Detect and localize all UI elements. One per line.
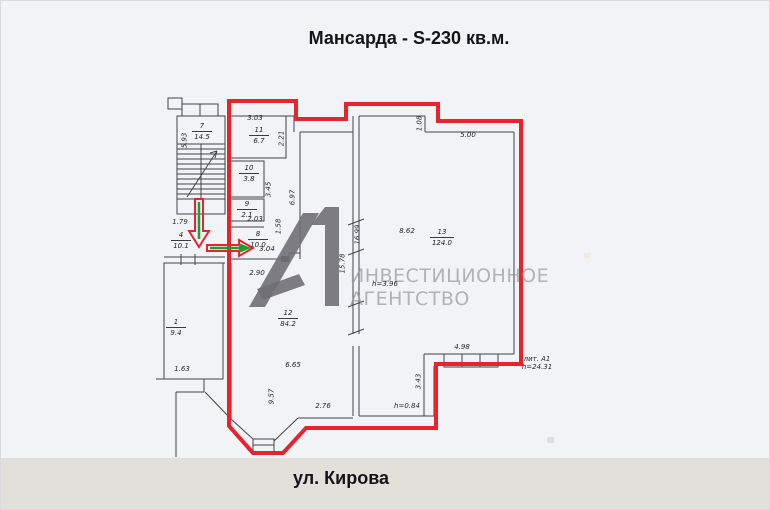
dim-label: 3.43	[415, 364, 424, 400]
height-label: h=24.31	[519, 363, 555, 372]
dim-label: h=0.84	[389, 402, 425, 411]
room-label-11: 116.7	[246, 126, 272, 145]
dim-label: 5.93	[181, 123, 190, 159]
dim-label: 1.79	[162, 218, 198, 227]
street-name: ул. Кирова	[191, 468, 491, 489]
dim-label: 15.78	[339, 246, 348, 282]
paper-speck	[584, 253, 590, 258]
watermark-line2: АГЕНТСТВО	[350, 288, 470, 310]
dim-label: 9.57	[268, 379, 277, 415]
room-label-1: 19.4	[163, 318, 189, 337]
dim-label: 8.62	[389, 227, 425, 236]
dim-label: 6.65	[275, 361, 311, 370]
room-label-12: 1284.2	[275, 309, 301, 328]
dim-label: 16.99	[354, 217, 363, 253]
dim-label: 4.98	[444, 343, 480, 352]
floor-plan-page: Мансарда - S-230 кв.м.	[0, 0, 770, 510]
room-label-13: 13124.0	[427, 228, 457, 247]
dim-label: 2.21	[278, 121, 287, 157]
dim-label: 1.58	[275, 209, 284, 245]
dim-label: 1.63	[164, 365, 200, 374]
dim-label: 6.97	[289, 180, 298, 216]
dim-label: 3.04	[249, 245, 285, 254]
dim-label: 1.08	[416, 106, 425, 142]
dim-label: 3.45	[265, 172, 274, 208]
dim-label: 2.76	[305, 402, 341, 411]
dim-label: 2.03	[237, 215, 273, 224]
room-label-4: 410.1	[168, 231, 194, 250]
floor-plan-drawing	[1, 1, 770, 510]
paper-speck	[547, 437, 554, 443]
room-label-7: 714.5	[189, 122, 215, 141]
dim-label: 2.90	[239, 269, 275, 278]
dim-label: 3.03	[237, 114, 273, 123]
dim-label: 5.00	[450, 131, 486, 140]
room-label-10: 103.8	[236, 164, 262, 183]
dim-label: h=3.96	[367, 280, 403, 289]
